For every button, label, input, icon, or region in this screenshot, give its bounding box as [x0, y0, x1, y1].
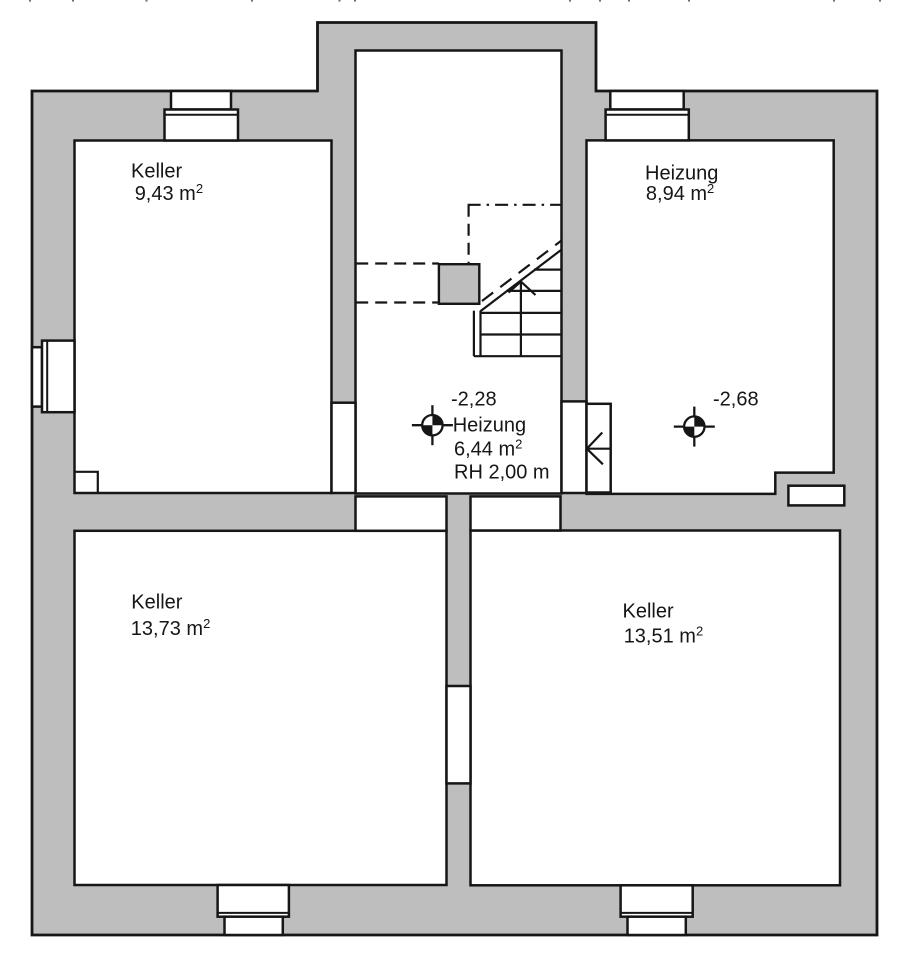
svg-text:Keller: Keller: [131, 161, 182, 183]
svg-text:-2,68: -2,68: [713, 389, 759, 411]
svg-text:-2,28: -2,28: [451, 389, 497, 411]
svg-text:9,43 m2: 9,43 m2: [135, 181, 203, 205]
svg-text:13,51 m2: 13,51 m2: [624, 624, 704, 648]
svg-text:Heizung: Heizung: [453, 415, 526, 437]
svg-text:6,44 m2: 6,44 m2: [454, 437, 522, 461]
svg-text:Keller: Keller: [623, 600, 674, 622]
svg-text:8,94 m2: 8,94 m2: [646, 181, 714, 205]
svg-text:RH 2,00 m: RH 2,00 m: [454, 462, 550, 484]
svg-text:13,73 m2: 13,73 m2: [131, 616, 211, 640]
svg-text:Keller: Keller: [131, 592, 182, 614]
